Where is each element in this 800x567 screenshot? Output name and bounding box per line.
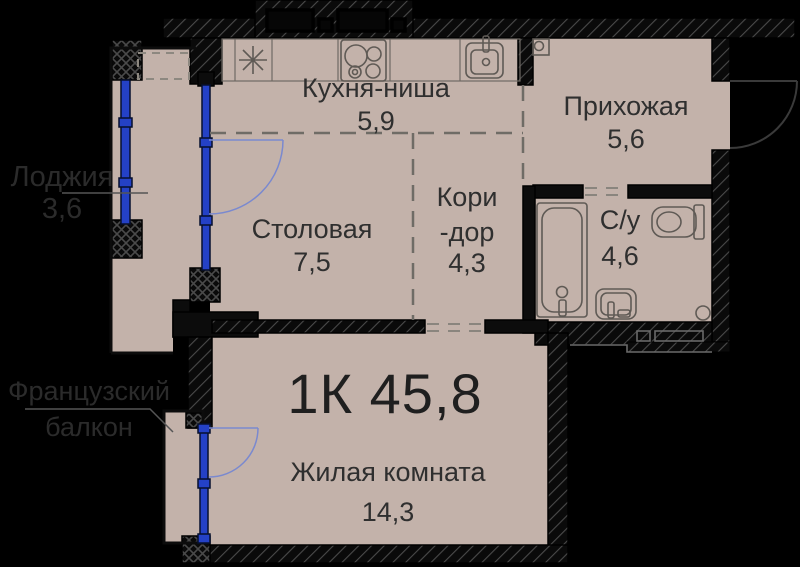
dining-area: 7,5 [293, 247, 331, 277]
hallway-label: Прихожая [563, 91, 688, 121]
corridor-area: 4,3 [448, 248, 486, 278]
loggia-area: 3,6 [42, 193, 82, 225]
kitchen-label: Кухня-ниша [302, 73, 451, 103]
wall-living-right [548, 333, 568, 563]
living-label: Жилая комната [290, 457, 486, 487]
french-balcony-window [198, 424, 210, 543]
kitchen-area: 5,9 [357, 106, 395, 136]
kitchen-sink-icon [239, 46, 267, 74]
wall-loggia-pier-bottom [112, 220, 142, 258]
wall-loggia-pier-lower [190, 268, 220, 302]
dining-loggia-window [200, 85, 212, 270]
wall-right-lower [712, 150, 730, 342]
wall-stub [198, 72, 214, 86]
french-balcony-label-line1: Французский [8, 376, 170, 406]
french-balcony-label-line2: балкон [45, 412, 133, 442]
loggia-window [119, 80, 132, 224]
dining-label: Столовая [252, 214, 373, 244]
hallway-area: 5,6 [607, 124, 645, 154]
entry-gap-floor [712, 81, 730, 150]
corridor-label-line1: Кори [437, 182, 498, 212]
floor-plan: Кухня-ниша 5,9 Прихожая 5,6 Столовая 7,5… [0, 0, 800, 567]
wall-bathroom-left [523, 186, 535, 333]
floor-plan-page: Кухня-ниша 5,9 Прихожая 5,6 Столовая 7,5… [0, 0, 800, 567]
loggia-label: Лоджия [11, 161, 114, 193]
bathroom-label: С/у [600, 205, 641, 235]
vent-square-icon [319, 19, 332, 31]
wall-corridor-living [485, 320, 548, 333]
french-balcony-floor [164, 411, 203, 543]
wall-bathroom-top-right [628, 185, 712, 198]
living-area: 14,3 [362, 497, 415, 527]
ledge-hatch [627, 342, 730, 352]
wall-living-bottom [182, 545, 568, 563]
vent-rect-icon [338, 10, 387, 31]
wall-dining-living [212, 320, 425, 333]
vent-square-icon [392, 19, 405, 31]
wall-bathroom-top-left [533, 185, 583, 198]
plan-title: 1К 45,8 [287, 362, 482, 425]
wall-right-upper [712, 38, 730, 81]
vent-rect-icon [267, 10, 313, 31]
corridor-label-line2: -дор [440, 217, 495, 247]
bathroom-door-gap [583, 185, 628, 198]
bathroom-area: 4,6 [601, 241, 639, 271]
